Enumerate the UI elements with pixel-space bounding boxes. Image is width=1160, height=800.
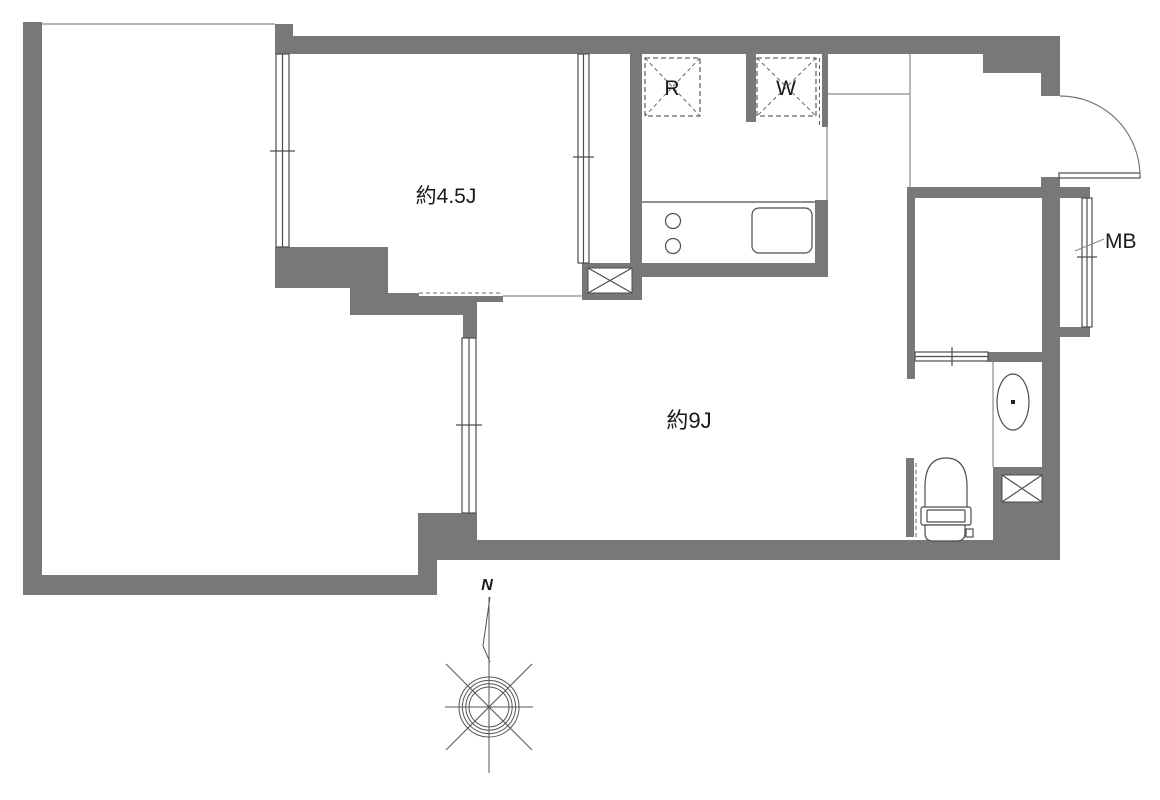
washbasin xyxy=(997,374,1029,430)
sink-icon xyxy=(752,208,812,253)
kitchen-bottom-wall xyxy=(642,263,828,277)
window-room45-left xyxy=(270,54,295,247)
toilet-tank-lid xyxy=(927,510,965,522)
toilet xyxy=(921,458,973,541)
meter-box-label: MB xyxy=(1105,230,1137,253)
window-room9-left xyxy=(456,338,482,513)
bathroom-left-wall xyxy=(907,198,915,379)
passage-sill xyxy=(419,296,503,302)
compass: N xyxy=(445,577,533,773)
floor-plan-canvas: R W MB 約4.5J 約9J N xyxy=(0,0,1160,800)
bathdoor-right-wall xyxy=(988,352,1042,362)
room-9-label: 約9J xyxy=(666,408,711,433)
partition-room45-right xyxy=(573,54,594,263)
toilet-bowl-icon xyxy=(925,458,967,513)
burner-icon xyxy=(666,239,681,254)
balcony-bottom-wall xyxy=(23,575,437,595)
duct-shaft-kitchen xyxy=(588,268,632,293)
burner-icon xyxy=(666,214,681,229)
entrance-alcove-wall xyxy=(983,54,1042,73)
refrigerator-space: R xyxy=(645,58,700,116)
toilet-handle xyxy=(966,529,973,537)
bathroom-sliding-door xyxy=(915,347,988,366)
washer-label: W xyxy=(776,77,796,100)
window-stub xyxy=(463,315,477,338)
below-door-block xyxy=(1041,177,1060,188)
meter-box-bottom-wall xyxy=(1042,327,1090,337)
bathroom-top-wall xyxy=(907,187,1090,198)
bottom-wall xyxy=(418,540,1060,560)
rw-divider-stub xyxy=(746,54,756,122)
top-wall xyxy=(293,36,1060,54)
toilet-base-icon xyxy=(925,525,965,541)
balcony-left-wall xyxy=(23,22,42,595)
meter-box-door xyxy=(1077,198,1097,327)
kitchen-counter xyxy=(666,208,813,254)
refrigerator-label: R xyxy=(664,77,679,100)
washer-space: W xyxy=(757,58,816,116)
bathroom-right-wall xyxy=(1042,198,1060,327)
top-left-notch xyxy=(275,24,293,54)
door-swing-arc xyxy=(1060,96,1140,176)
kitchen-hall-bar xyxy=(822,54,828,127)
entrance-door xyxy=(1059,96,1140,178)
north-label: N xyxy=(481,577,493,594)
drain-dot xyxy=(1011,400,1015,404)
kitchen-left-wall xyxy=(630,54,642,265)
floor-lines xyxy=(42,24,993,467)
duct-shaft-corner xyxy=(1002,475,1042,502)
entrance-door-column xyxy=(1041,36,1060,96)
door-leaf xyxy=(1059,173,1140,178)
toilet-wall-stub xyxy=(906,458,914,537)
floor-plan: R W MB 約4.5J 約9J N xyxy=(0,0,1160,800)
room-45-label: 約4.5J xyxy=(416,185,477,208)
step-wall-upper xyxy=(275,247,388,288)
